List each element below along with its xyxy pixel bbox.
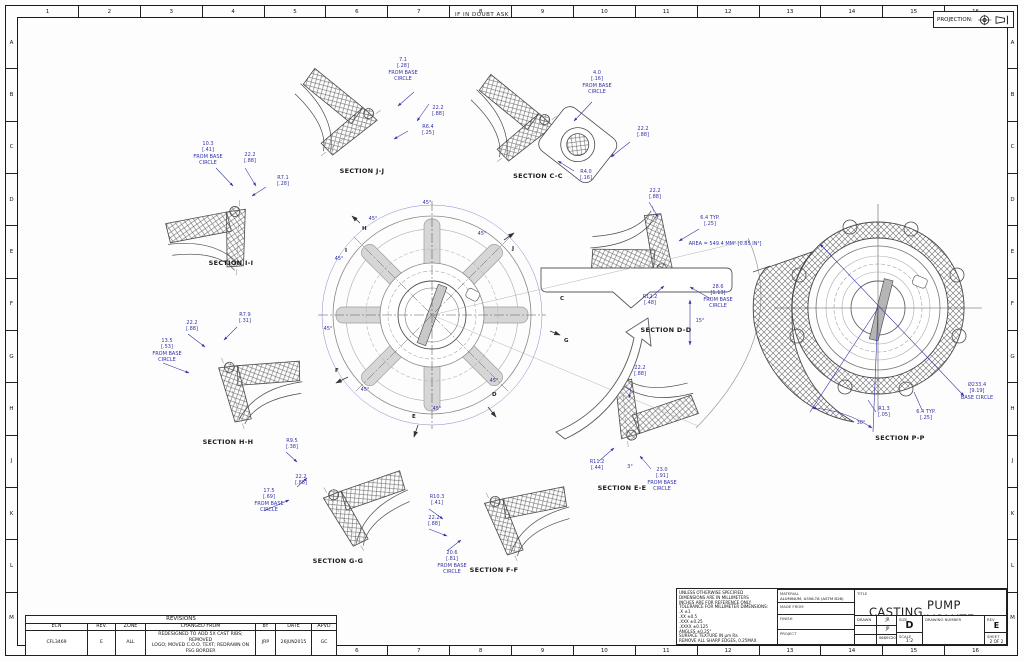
- section-label-hh: SECTION H-H: [203, 438, 254, 446]
- dim-ii-radius: R7.1 [.28]: [257, 175, 309, 188]
- dim-hh-offset: 13.5 [.53] FROM BASE CIRCLE: [141, 338, 193, 363]
- drawn-label: DRAWN: [855, 616, 871, 622]
- revision-apvd: GC: [312, 631, 336, 655]
- revisions-header-rev: REV.: [88, 624, 116, 630]
- title-block: UNLESS OTHERWISE SPECIFIED DIMENSIONS AR…: [676, 588, 1007, 645]
- dim-angle-45-5: 45°: [339, 387, 391, 393]
- cut-letter-i: I: [345, 248, 347, 254]
- made-from-label: MADE FROM: [778, 603, 854, 609]
- general-notes: UNLESS OTHERWISE SPECIFIED DIMENSIONS AR…: [677, 589, 777, 644]
- dim-ff-width: 22.2 [.88]: [408, 515, 460, 528]
- approved-value: JP: [877, 625, 896, 631]
- dim-gg-radius: R9.5 [.38]: [266, 438, 318, 451]
- title-text-right: PUMP VOLUTE: [927, 598, 998, 615]
- dim-angle-45-3: 45°: [313, 256, 365, 262]
- revision-zone: ALL: [116, 631, 146, 655]
- section-label-ee: SECTION E-E: [598, 484, 647, 492]
- dim-gg-width: 22.2 [.88]: [275, 474, 327, 487]
- dim-hh-radius: R7.9 [.31]: [219, 312, 271, 325]
- dim-pp-typ: 6.4 TYP. [.25]: [900, 409, 952, 422]
- revisions-title: REVISIONS: [26, 616, 336, 624]
- revisions-header-row: ECN REV. ZONE CHANGED FROM BY DATE APVD: [26, 624, 336, 631]
- cut-letter-c: C: [560, 296, 564, 302]
- drawing-sheet: 12345678910111213141516 1234567891011121…: [0, 0, 1024, 662]
- revision-changed-from: REDESIGNED TO ADD 5X CAST RIBS; REMOVED …: [146, 631, 256, 655]
- revision-by: JRP: [256, 631, 276, 655]
- drawn-value: JR: [877, 615, 896, 622]
- section-label-ff: SECTION F-F: [470, 566, 519, 574]
- cut-letter-e: E: [412, 414, 416, 420]
- dim-dd-radius: R12.2 [.48]: [624, 294, 676, 307]
- cut-letter-j: J: [512, 246, 514, 252]
- dim-hh-width: 22.2 [.88]: [166, 320, 218, 333]
- section-gg-linework: [312, 443, 425, 555]
- revisions-table: REVISIONS ECN REV. ZONE CHANGED FROM BY …: [25, 615, 337, 656]
- dim-ee-width: 22.2 [.88]: [614, 365, 666, 378]
- dim-pp-angle: 30°: [835, 420, 887, 426]
- dim-angle-45-7: 45°: [401, 200, 453, 206]
- cut-letter-g: G: [564, 338, 569, 344]
- dim-dd-offset: 28.6 [1.13] FROM BASE CIRCLE: [692, 284, 744, 309]
- date-value: 06DEC2012: [877, 634, 896, 640]
- section-label-ii: SECTION I-I: [209, 259, 254, 267]
- sheet-value: 2 OF 2: [985, 639, 1008, 644]
- dim-angle-45-8: 45°: [468, 378, 520, 384]
- dim-cc-radius: R4.0 [.16]: [560, 169, 612, 182]
- size-value: D: [897, 622, 922, 630]
- revision-row: CFL3469 E ALL REDESIGNED TO ADD 5X CAST …: [26, 631, 336, 655]
- dim-ff-radius: R10.3 [.41]: [411, 494, 463, 507]
- project-label: PROJECT: [778, 630, 854, 636]
- section-ff-linework: [473, 456, 585, 565]
- revision-rev: E: [88, 631, 116, 655]
- dim-cc-offset: 4.0 [.16] FROM BASE CIRCLE: [571, 70, 623, 95]
- revision-ecn: CFL3469: [26, 631, 88, 655]
- revisions-header-ecn: ECN: [26, 624, 88, 630]
- dim-dd-width: 22.2 [.88]: [629, 188, 681, 201]
- revisions-header-date: DATE: [276, 624, 312, 630]
- cut-letter-h: H: [362, 226, 367, 232]
- cut-letter-f: F: [335, 368, 339, 374]
- section-jj-linework: [280, 50, 388, 161]
- dim-cc-width: 22.2 [.88]: [617, 126, 669, 139]
- section-label-jj: SECTION J-J: [340, 167, 385, 175]
- section-label-cc: SECTION C-C: [513, 172, 563, 180]
- rev-value: E: [985, 622, 1008, 629]
- dim-jj-radius: R6.4 [.25]: [402, 124, 454, 137]
- revisions-header-apvd: APVD: [312, 624, 336, 630]
- dim-angle-45-4: 45°: [302, 326, 354, 332]
- dim-jj-width: 22.2 [.88]: [412, 105, 464, 118]
- scale-value: 1:2: [897, 639, 922, 644]
- drawing-linework: [0, 0, 1024, 662]
- section-label-gg: SECTION G-G: [313, 557, 364, 565]
- dim-dd-typ: 6.4 TYP. [.25]: [684, 215, 736, 228]
- section-hh-linework: [208, 328, 316, 432]
- revision-date: 26JUN2015: [276, 631, 312, 655]
- dim-angle-45-2: 45°: [456, 231, 508, 237]
- revisions-header-by: BY: [256, 624, 276, 630]
- dim-angle-15: 15°: [674, 318, 726, 324]
- dim-ii-width: 22.2 [.88]: [224, 152, 276, 165]
- dim-dd-area: AREA = 549.4 MM² [0.85 IN²]: [660, 241, 790, 247]
- title-text-left: CASTING,: [869, 605, 927, 615]
- center-plan-view: [318, 201, 560, 437]
- drawing-number-label: DRAWING NUMBER: [923, 616, 984, 622]
- section-pp-linework: [753, 204, 982, 432]
- dim-jj-offset: 7.1 [.28] FROM BASE CIRCLE: [377, 57, 429, 82]
- section-label-pp: SECTION P-P: [875, 434, 924, 442]
- dim-pp-diameter: Ø233.4 [9.19] BASE CIRCLE: [951, 382, 1003, 401]
- revisions-header-changed-from: CHANGED FROM: [146, 624, 256, 630]
- finish-label: FINISH: [778, 615, 854, 621]
- cut-letter-d: D: [492, 392, 497, 398]
- revisions-header-zone: ZONE: [116, 624, 146, 630]
- material-value: ALUMINUM, A356-T6 (ASTM B26): [778, 596, 854, 601]
- dim-gg-offset: 17.5 [.69] FROM BASE CIRCLE: [243, 488, 295, 513]
- dim-angle-45-6: 45°: [411, 406, 463, 412]
- dim-angle-45-1: 45°: [347, 216, 399, 222]
- section-label-dd: SECTION D-D: [641, 326, 692, 334]
